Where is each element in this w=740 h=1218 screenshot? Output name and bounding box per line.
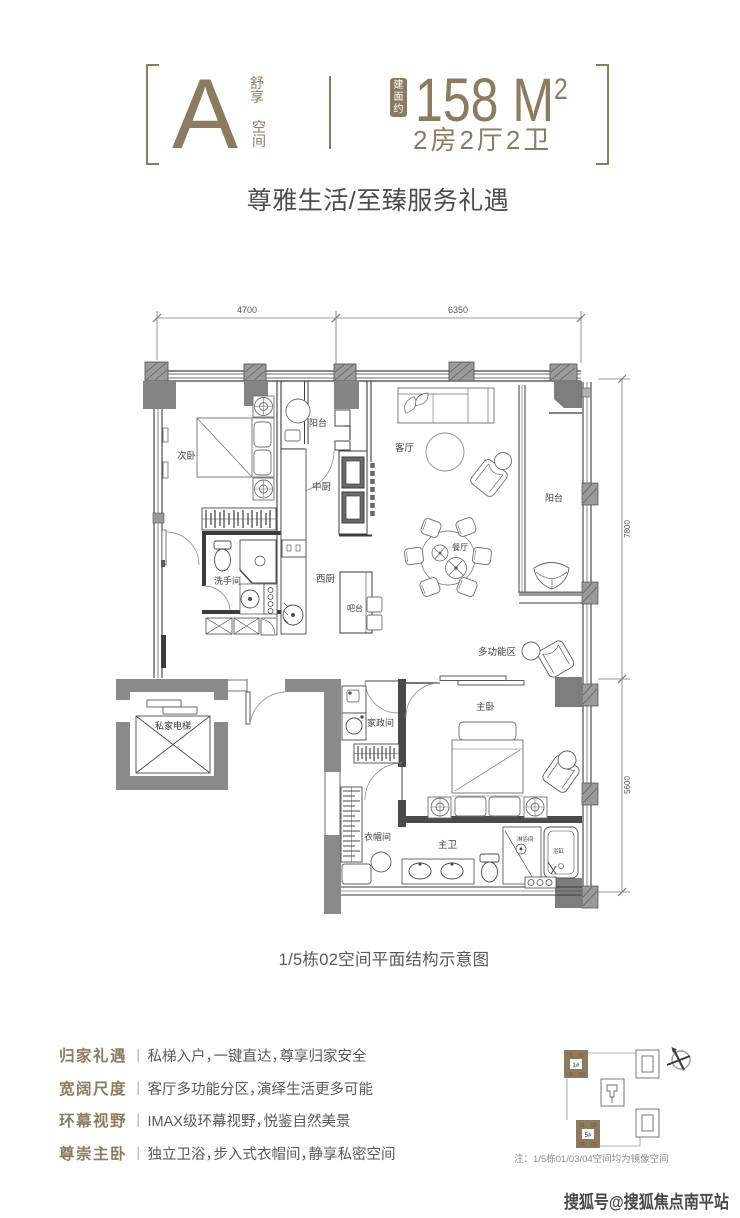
svg-text:次卧: 次卧 bbox=[177, 450, 197, 462]
svg-text:6350: 6350 bbox=[448, 305, 468, 315]
svg-text:03: 03 bbox=[591, 1142, 597, 1148]
svg-text:主卫: 主卫 bbox=[438, 839, 458, 851]
svg-text:吧台: 吧台 bbox=[347, 603, 363, 613]
svg-text:5600: 5600 bbox=[623, 776, 632, 794]
svg-text:02: 02 bbox=[591, 1123, 597, 1129]
svg-text:03: 03 bbox=[579, 1072, 585, 1078]
svg-text:中厨: 中厨 bbox=[312, 481, 332, 493]
svg-text:04: 04 bbox=[567, 1072, 573, 1078]
svg-text:02: 02 bbox=[579, 1053, 585, 1059]
svg-text:1#: 1# bbox=[573, 1063, 580, 1069]
svg-text:01: 01 bbox=[579, 1123, 585, 1129]
svg-text:04: 04 bbox=[579, 1142, 585, 1148]
svg-text:淋浴间: 淋浴间 bbox=[517, 835, 534, 843]
svg-text:衣帽间: 衣帽间 bbox=[364, 831, 391, 842]
svg-text:西厨: 西厨 bbox=[316, 574, 336, 585]
svg-text:5#: 5# bbox=[585, 1133, 592, 1139]
svg-text:餐厅: 餐厅 bbox=[452, 543, 468, 552]
svg-text:主卧: 主卧 bbox=[476, 701, 496, 713]
svg-text:浴缸: 浴缸 bbox=[553, 847, 565, 855]
svg-text:4700: 4700 bbox=[237, 305, 257, 315]
svg-text:多功能区: 多功能区 bbox=[478, 646, 517, 658]
svg-text:洗手间: 洗手间 bbox=[214, 575, 241, 586]
svg-text:阳台: 阳台 bbox=[309, 417, 327, 428]
svg-text:7800: 7800 bbox=[623, 520, 632, 538]
svg-text:客厅: 客厅 bbox=[395, 442, 415, 454]
svg-text:阳台: 阳台 bbox=[545, 492, 563, 503]
svg-text:01: 01 bbox=[567, 1053, 573, 1059]
svg-text:家政间: 家政间 bbox=[367, 717, 394, 728]
svg-text:私家电梯: 私家电梯 bbox=[155, 720, 191, 731]
